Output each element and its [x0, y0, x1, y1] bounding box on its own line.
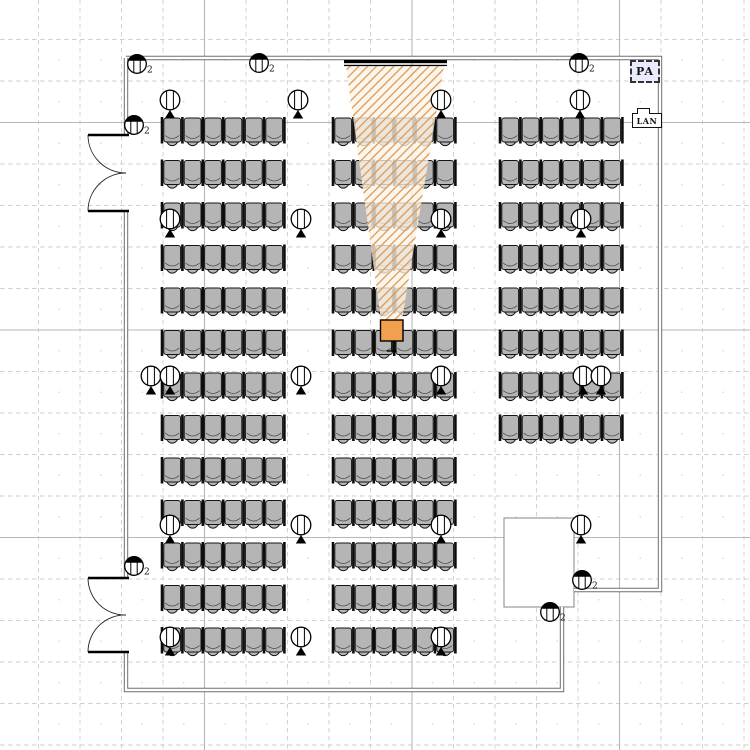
chair-row — [161, 457, 286, 486]
chair — [245, 118, 262, 146]
door-swing — [88, 578, 129, 652]
chair — [543, 373, 560, 401]
chair — [396, 373, 413, 401]
chair-row — [332, 585, 457, 614]
chair — [335, 288, 352, 316]
chair — [245, 246, 262, 274]
chair — [355, 458, 372, 486]
chair — [184, 246, 201, 274]
chair — [266, 628, 283, 656]
chair — [335, 161, 352, 189]
chair — [416, 628, 433, 656]
chair — [416, 586, 433, 614]
chair — [245, 203, 262, 231]
chair — [522, 373, 539, 401]
chair — [164, 288, 181, 316]
ceiling-speaker-symbol — [571, 209, 591, 237]
chair — [245, 288, 262, 316]
chair — [225, 118, 242, 146]
chair — [396, 458, 413, 486]
chair — [164, 118, 181, 146]
chair — [205, 161, 222, 189]
chair — [164, 586, 181, 614]
chair — [437, 416, 454, 444]
chair — [604, 416, 621, 444]
chair — [184, 373, 201, 401]
chair — [355, 501, 372, 529]
chair — [376, 586, 393, 614]
chair — [522, 246, 539, 274]
chair — [335, 628, 352, 656]
chair — [205, 331, 222, 359]
outlet-count-label: 2 — [269, 65, 275, 75]
chair — [355, 543, 372, 571]
chair — [502, 161, 519, 189]
chair — [502, 416, 519, 444]
chair — [184, 203, 201, 231]
chair-row — [161, 117, 286, 146]
outlet-count-label: 2 — [147, 66, 153, 76]
chair — [522, 288, 539, 316]
chair — [522, 203, 539, 231]
chair — [563, 161, 580, 189]
pa-label: PA — [636, 65, 654, 78]
chair — [266, 161, 283, 189]
door-swing — [88, 135, 129, 211]
chair — [335, 416, 352, 444]
chair — [355, 288, 372, 316]
chair — [335, 118, 352, 146]
ceiling-speaker-symbol — [431, 515, 451, 543]
speaker-direction-triangle-icon — [296, 647, 306, 656]
chair-row — [499, 160, 624, 189]
chair — [184, 458, 201, 486]
chair — [604, 246, 621, 274]
chair — [437, 543, 454, 571]
speaker-direction-triangle-icon — [165, 535, 175, 544]
power-outlet-symbol: 2 — [125, 557, 150, 578]
chair — [225, 543, 242, 571]
chair — [355, 246, 372, 274]
chair — [543, 288, 560, 316]
chair — [437, 246, 454, 274]
chair — [563, 288, 580, 316]
chair — [266, 246, 283, 274]
chair — [437, 331, 454, 359]
lan-label: LAN — [637, 116, 658, 126]
chair-row — [499, 287, 624, 316]
chair — [245, 628, 262, 656]
chair — [416, 458, 433, 486]
chair — [396, 586, 413, 614]
outlet-count-label: 2 — [560, 614, 566, 624]
speaker-direction-triangle-icon — [576, 535, 586, 544]
chair — [376, 501, 393, 529]
chair — [225, 416, 242, 444]
chair — [376, 628, 393, 656]
chair — [355, 373, 372, 401]
chair-row — [161, 287, 286, 316]
chair — [225, 458, 242, 486]
chair — [245, 458, 262, 486]
ceiling-speaker-symbol — [570, 90, 590, 118]
ceiling-speaker-symbol — [291, 209, 311, 237]
projection-screen — [344, 60, 447, 66]
chair — [184, 118, 201, 146]
chair — [225, 246, 242, 274]
chair — [205, 628, 222, 656]
chair — [376, 373, 393, 401]
chair — [396, 416, 413, 444]
chair — [543, 246, 560, 274]
chair — [205, 288, 222, 316]
chair — [205, 118, 222, 146]
chair-row — [161, 542, 286, 571]
chair — [164, 543, 181, 571]
chair — [376, 458, 393, 486]
chair — [437, 288, 454, 316]
pa-equipment-box: PA — [630, 60, 660, 83]
lan-box-tab-icon — [637, 108, 650, 114]
chair — [543, 161, 560, 189]
chair — [604, 203, 621, 231]
chair-row — [161, 415, 286, 444]
chair — [583, 118, 600, 146]
chair — [583, 416, 600, 444]
chair — [164, 416, 181, 444]
ceiling-speaker-symbol — [291, 627, 311, 655]
chair — [437, 586, 454, 614]
outlet-count-label: 2 — [589, 65, 595, 75]
chair — [563, 416, 580, 444]
chair — [396, 501, 413, 529]
chair-row — [499, 117, 624, 146]
chair — [266, 586, 283, 614]
chair — [184, 586, 201, 614]
chair — [396, 543, 413, 571]
chair — [245, 543, 262, 571]
chair — [245, 373, 262, 401]
chair — [205, 203, 222, 231]
ceiling-speaker-symbol — [291, 366, 311, 394]
chair — [184, 416, 201, 444]
chair — [164, 331, 181, 359]
chair — [245, 416, 262, 444]
chair-row — [332, 542, 457, 571]
chair — [266, 373, 283, 401]
chair-row — [161, 585, 286, 614]
door-arc — [88, 135, 126, 173]
chair — [205, 543, 222, 571]
chair — [522, 331, 539, 359]
projector-beam — [346, 66, 444, 320]
chair — [205, 458, 222, 486]
chair — [604, 331, 621, 359]
chair — [245, 161, 262, 189]
chair — [205, 373, 222, 401]
chair — [355, 331, 372, 359]
chair — [543, 118, 560, 146]
chair — [502, 203, 519, 231]
outlet-count-label: 2 — [592, 582, 598, 592]
chair — [245, 586, 262, 614]
chair — [437, 161, 454, 189]
outlet-count-label: 2 — [144, 127, 150, 137]
chair — [583, 246, 600, 274]
outlet-count-label: 2 — [144, 568, 150, 578]
chair — [184, 161, 201, 189]
chair — [416, 416, 433, 444]
chair — [184, 288, 201, 316]
ceiling-speaker-symbol — [291, 515, 311, 543]
chair — [164, 246, 181, 274]
chair — [335, 331, 352, 359]
chair — [184, 543, 201, 571]
chair — [583, 288, 600, 316]
chair — [583, 161, 600, 189]
chair — [245, 501, 262, 529]
chair — [225, 501, 242, 529]
chair-row — [161, 160, 286, 189]
chair — [335, 373, 352, 401]
chair — [543, 331, 560, 359]
chair — [225, 628, 242, 656]
chair — [604, 118, 621, 146]
speaker-direction-triangle-icon — [576, 229, 586, 238]
chair — [225, 203, 242, 231]
chair-row — [332, 415, 457, 444]
chair — [416, 288, 433, 316]
chair — [335, 246, 352, 274]
speaker-direction-triangle-icon — [575, 110, 585, 119]
chair — [522, 161, 539, 189]
chair — [583, 331, 600, 359]
speaker-direction-triangle-icon — [146, 386, 156, 395]
chair — [335, 543, 352, 571]
speaker-direction-triangle-icon — [296, 535, 306, 544]
chair — [416, 331, 433, 359]
chair — [502, 246, 519, 274]
chair — [225, 331, 242, 359]
chair — [266, 118, 283, 146]
speaker-direction-triangle-icon — [296, 386, 306, 395]
chair — [376, 543, 393, 571]
chair — [205, 501, 222, 529]
speaker-direction-triangle-icon — [293, 110, 303, 119]
chair — [437, 458, 454, 486]
control-booth — [504, 518, 574, 607]
chair — [164, 161, 181, 189]
chair — [416, 543, 433, 571]
chair — [335, 501, 352, 529]
chair — [522, 416, 539, 444]
chair — [502, 118, 519, 146]
chair — [225, 288, 242, 316]
ceiling-speaker-symbol — [431, 209, 451, 237]
chair-row — [161, 245, 286, 274]
ceiling-speaker-symbol — [288, 90, 308, 118]
lan-port-box: LAN — [632, 113, 662, 128]
speaker-direction-triangle-icon — [165, 110, 175, 119]
chair — [335, 203, 352, 231]
power-outlet-symbol: 2 — [125, 116, 150, 137]
speaker-direction-triangle-icon — [296, 229, 306, 238]
chair — [502, 331, 519, 359]
chair — [543, 203, 560, 231]
chair — [355, 416, 372, 444]
door-arc — [88, 578, 126, 615]
chair — [563, 331, 580, 359]
chair — [205, 586, 222, 614]
chair — [355, 628, 372, 656]
chair — [604, 288, 621, 316]
chair — [266, 501, 283, 529]
chair — [522, 118, 539, 146]
chair — [335, 586, 352, 614]
chair — [164, 458, 181, 486]
chair — [563, 118, 580, 146]
chair-row — [161, 330, 286, 359]
floor-plan: 2222222 PA LAN — [0, 0, 750, 750]
chair — [266, 288, 283, 316]
speaker-direction-triangle-icon — [436, 110, 446, 119]
chair — [563, 246, 580, 274]
chair — [266, 331, 283, 359]
chair — [184, 628, 201, 656]
chair-row — [332, 457, 457, 486]
chair — [225, 373, 242, 401]
chair — [225, 586, 242, 614]
chair — [266, 543, 283, 571]
seating-block-left — [161, 117, 286, 656]
chair — [266, 416, 283, 444]
ceiling-speaker-symbol — [141, 366, 161, 394]
chair — [502, 373, 519, 401]
chair — [266, 458, 283, 486]
chair — [604, 161, 621, 189]
chair — [184, 331, 201, 359]
chair — [437, 118, 454, 146]
speaker-direction-triangle-icon — [436, 535, 446, 544]
chair-row — [499, 245, 624, 274]
chair — [396, 628, 413, 656]
chair-row — [499, 415, 624, 444]
chair — [416, 246, 433, 274]
chair — [355, 586, 372, 614]
chair — [376, 416, 393, 444]
chair — [543, 416, 560, 444]
chair — [245, 331, 262, 359]
chair — [335, 458, 352, 486]
chair — [225, 161, 242, 189]
chair — [205, 416, 222, 444]
chair — [266, 203, 283, 231]
chair — [205, 246, 222, 274]
chair — [184, 501, 201, 529]
chair — [502, 288, 519, 316]
chair-row — [499, 202, 624, 231]
chair-row — [499, 330, 624, 359]
